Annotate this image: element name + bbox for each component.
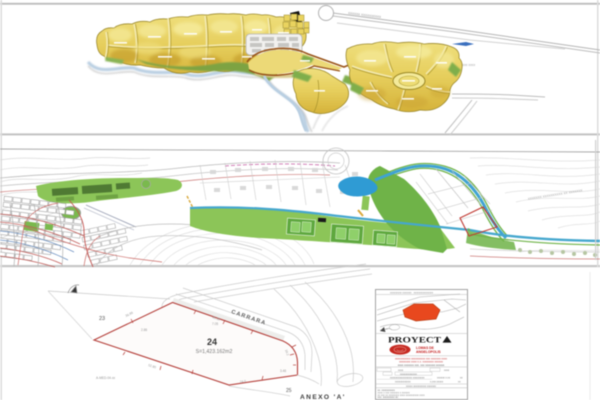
svg-text:25: 25 (286, 388, 292, 394)
svg-text:23: 23 (99, 316, 105, 322)
svg-text:7.05: 7.05 (212, 322, 218, 326)
svg-text:xxxxx xxxxxxxxxx xxxxxxx: xxxxx xxxxxxxxxx xxxxxxx (406, 385, 437, 388)
svg-text:xxxxxxxxxxxxxxxxx xxxxxxxxx: xxxxxxxxxxxxxxxxx xxxxxxxxx (390, 376, 425, 379)
svg-text:xxxx: xxxx (398, 369, 404, 372)
svg-text:xxxxxxxxx xxxxxxx xxxxxxxxxx: xxxxxxxxx xxxxxxx xxxxxxxxxxxxxxx (390, 292, 434, 295)
svg-text:24: 24 (207, 337, 217, 347)
svg-text:xxxx: xxxx (444, 369, 450, 372)
svg-text:ANEXO 'A': ANEXO 'A' (300, 394, 346, 400)
svg-text:S=1,423.162m2: S=1,423.162m2 (196, 349, 233, 355)
svg-text:PROYECT: PROYECT (388, 335, 441, 345)
svg-text:x,xxx.xxxxx: x,xxx.xxxxx (430, 380, 444, 383)
svg-text:xxxxxxxxxxxx: xxxxxxxxxxxx (395, 380, 411, 383)
svg-text:A-MED-04-xx: A-MED-04-xx (96, 376, 116, 380)
svg-text:ANGELOPOLIS: ANGELOPOLIS (416, 350, 441, 354)
svg-text:3.46: 3.46 (280, 369, 286, 373)
svg-text:xxxx xxxxxxx xxx. xxx xxxxxxx: xxxx xxxxxxx xxx. xxx xxxxxxx xxxxxx (398, 363, 445, 367)
svg-text:xxxxxx x.xx: xxxxxx x.xx (437, 376, 451, 379)
svg-text:xxx. xxxxxxxxx xx:: xxx. xxxxxxxxx xx: (378, 396, 399, 399)
svg-text:xxxxxxxxxxxxx: xxxxxxxxxxxxx (400, 373, 418, 376)
svg-text:2.86: 2.86 (141, 328, 147, 332)
